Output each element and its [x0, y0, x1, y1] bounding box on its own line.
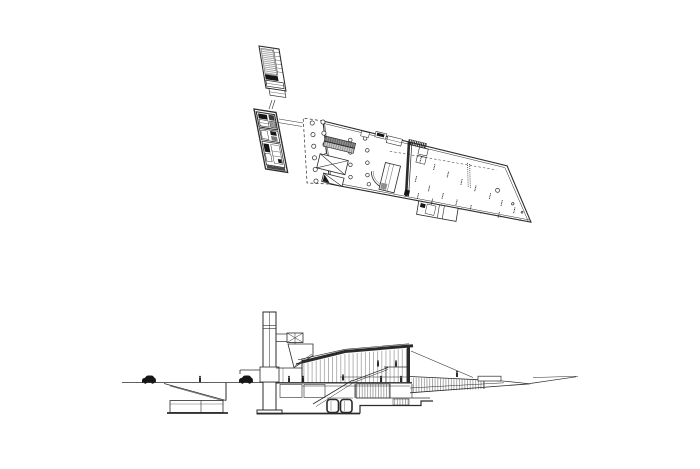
- section-drawing: [122, 312, 578, 414]
- curtain-wall-mullions: [302, 349, 409, 383]
- main-building-plan: [287, 114, 543, 241]
- tower-section: [257, 312, 282, 414]
- floor-plan: [254, 46, 543, 241]
- basement-hatch-wall: [356, 384, 390, 398]
- annex-building-plan: [254, 109, 288, 172]
- promenade-ramp: [410, 351, 530, 393]
- storage-tanks: [327, 400, 352, 413]
- ground-line-right: [530, 376, 578, 383]
- service-building-plan: [259, 46, 287, 98]
- drawing-sheet: [0, 0, 700, 469]
- central-basement: [257, 381, 433, 414]
- architectural-drawing: [0, 0, 700, 469]
- canopy-ledge: [240, 370, 263, 374]
- x-brace: [276, 333, 303, 344]
- entry-ramp: [164, 383, 226, 402]
- parking-basement: [167, 401, 228, 414]
- cable-line: [411, 351, 473, 378]
